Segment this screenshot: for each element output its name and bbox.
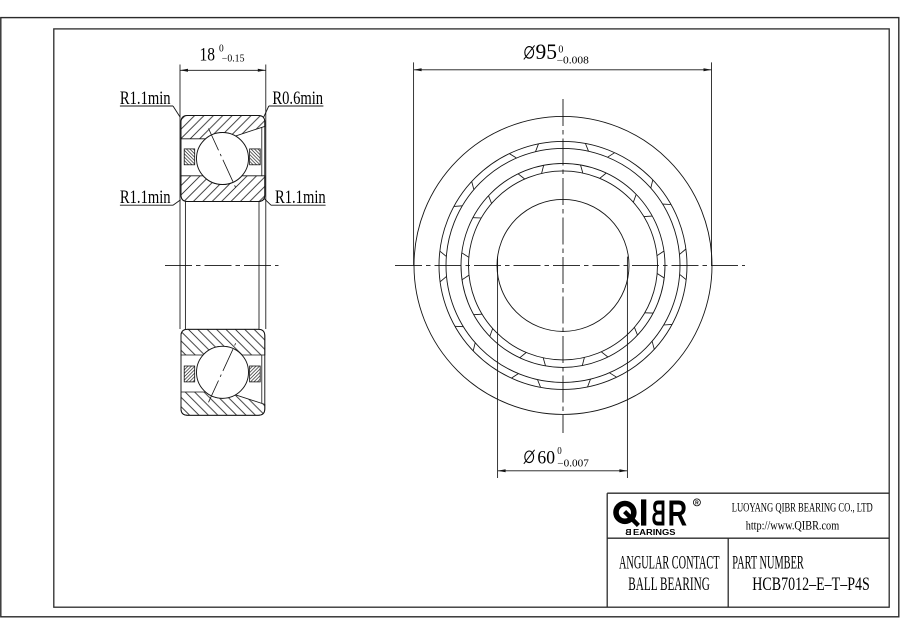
svg-text:LUOYANG QIBR BEARING CO., LTD: LUOYANG QIBR BEARING CO., LTD — [732, 501, 873, 515]
svg-text:http://www.QIBR.com: http://www.QIBR.com — [746, 519, 840, 533]
svg-text:BALL BEARING: BALL BEARING — [628, 574, 710, 595]
svg-text:−0.007: −0.007 — [557, 459, 589, 470]
svg-text:95: 95 — [536, 39, 558, 64]
svg-text:60: 60 — [537, 447, 555, 468]
svg-text:EARINGS: EARINGS — [633, 527, 676, 537]
svg-text:ANGULAR CONTACT: ANGULAR CONTACT — [619, 552, 720, 573]
svg-text:−0.008: −0.008 — [557, 55, 589, 66]
svg-text:0: 0 — [558, 45, 563, 56]
svg-text:18: 18 — [200, 46, 216, 66]
svg-text:HCB7012–E–T–P4S: HCB7012–E–T–P4S — [752, 574, 870, 595]
svg-text:PART NUMBER: PART NUMBER — [732, 552, 804, 573]
svg-text:−0.15: −0.15 — [222, 53, 245, 64]
svg-text:R: R — [695, 500, 699, 506]
svg-text:B: B — [625, 527, 631, 537]
svg-text:0: 0 — [557, 446, 562, 457]
